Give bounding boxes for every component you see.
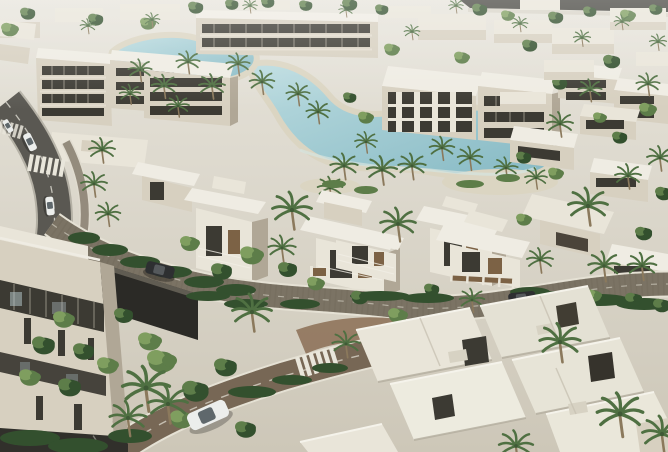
lower-left-building bbox=[0, 238, 128, 436]
haze-overlay bbox=[0, 0, 668, 110]
aerial-render bbox=[0, 0, 668, 452]
